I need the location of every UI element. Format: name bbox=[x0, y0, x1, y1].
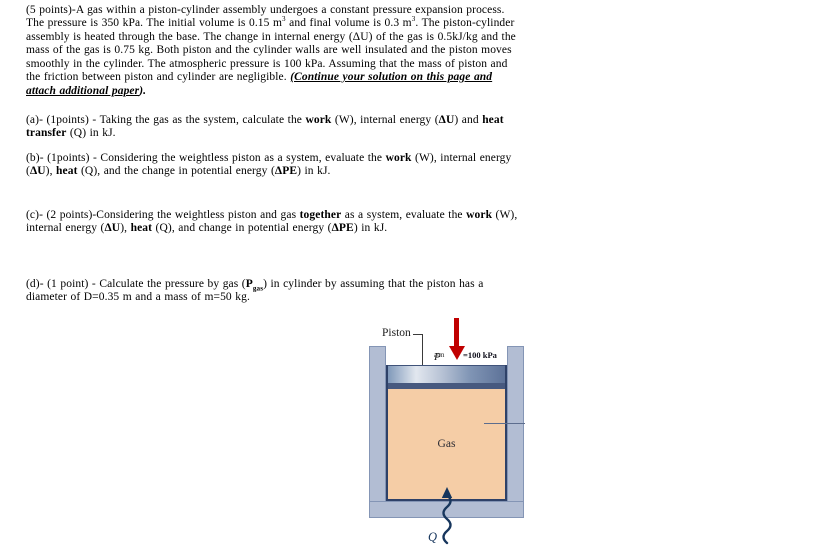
patm-value: =100 kPa bbox=[463, 350, 497, 360]
cylinder-wall-left bbox=[369, 346, 386, 518]
part-a-question: (a)- (1points) - Taking the gas as the s… bbox=[26, 114, 518, 141]
document-page: (5 points)-A gas within a piston-cylinde… bbox=[0, 0, 819, 548]
piston bbox=[388, 365, 505, 389]
piston-metal-surface bbox=[388, 366, 505, 383]
cylinder-cavity: Gas bbox=[386, 365, 507, 501]
cylinder-wall-right bbox=[507, 346, 524, 518]
part-c-question: (c)- (2 points)-Considering the weightle… bbox=[26, 209, 518, 236]
gas-region: Gas bbox=[388, 389, 505, 499]
gas-leader-line bbox=[484, 423, 525, 424]
heat-label: Q bbox=[428, 530, 437, 545]
piston-cylinder-figure: Piston Patm =100 kPa Gas Q bbox=[366, 314, 528, 548]
gas-label: Gas bbox=[438, 438, 456, 450]
atmospheric-pressure-arrow bbox=[454, 318, 459, 347]
heat-transfer-arrow-icon bbox=[438, 487, 456, 548]
piston-label: Piston bbox=[382, 327, 411, 339]
problem-statement: (5 points)-A gas within a piston-cylinde… bbox=[26, 4, 518, 98]
patm-subscript: atm bbox=[434, 351, 445, 359]
part-b-question: (b)- (1points) - Considering the weightl… bbox=[26, 152, 518, 179]
part-d-question: (d)- (1 point) - Calculate the pressure … bbox=[26, 278, 518, 305]
